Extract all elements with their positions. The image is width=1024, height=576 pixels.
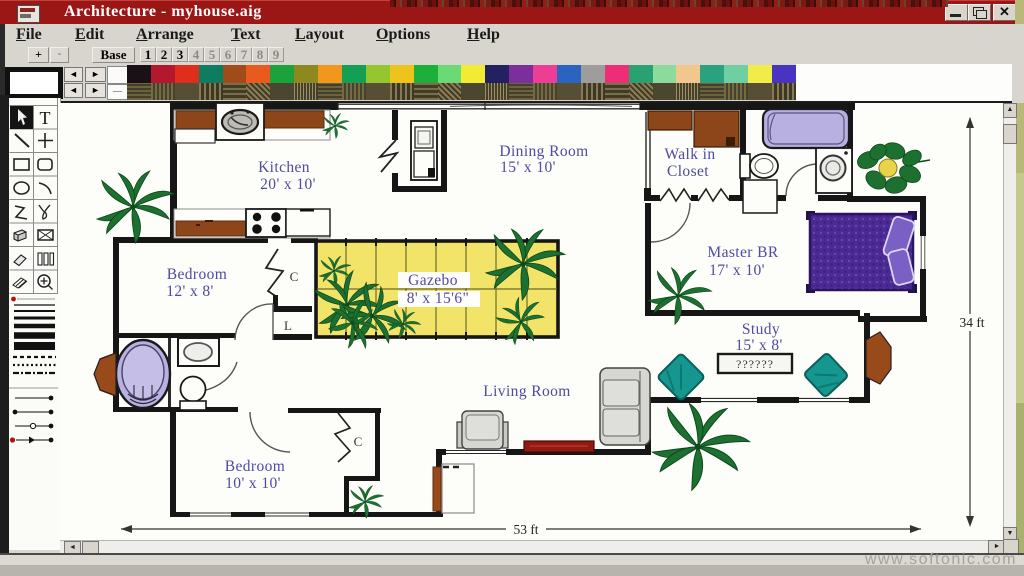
svg-text:34 ft: 34 ft: [959, 315, 984, 330]
svg-text:T: T: [40, 108, 51, 128]
svg-text:C: C: [354, 434, 363, 449]
svg-text:C: C: [290, 269, 299, 284]
svg-text:8' x 15'6": 8' x 15'6": [407, 290, 469, 307]
svg-text:Kitchen: Kitchen: [258, 159, 310, 176]
svg-text:L: L: [284, 318, 292, 333]
svg-text:12' x 8': 12' x 8': [166, 283, 214, 300]
svg-text:15' x 8': 15' x 8': [735, 337, 783, 354]
svg-text:Closet: Closet: [667, 163, 709, 180]
svg-text:Walk in: Walk in: [664, 146, 715, 163]
svg-text:10' x 10': 10' x 10': [225, 475, 281, 492]
svg-text:Dining Room: Dining Room: [499, 143, 588, 160]
svg-text:20' x 10': 20' x 10': [260, 176, 316, 193]
svg-text:Gazebo: Gazebo: [408, 272, 458, 289]
svg-text:Living Room: Living Room: [483, 383, 571, 400]
svg-text:Bedroom: Bedroom: [225, 458, 286, 475]
svg-text:Master BR: Master BR: [707, 244, 778, 261]
svg-text:??????: ??????: [736, 357, 774, 371]
svg-text:17' x 10': 17' x 10': [709, 262, 765, 279]
svg-text:15' x 10': 15' x 10': [500, 159, 556, 176]
svg-text:Study: Study: [742, 321, 780, 338]
svg-text:53 ft: 53 ft: [513, 522, 538, 537]
svg-text:Bedroom: Bedroom: [167, 266, 228, 283]
